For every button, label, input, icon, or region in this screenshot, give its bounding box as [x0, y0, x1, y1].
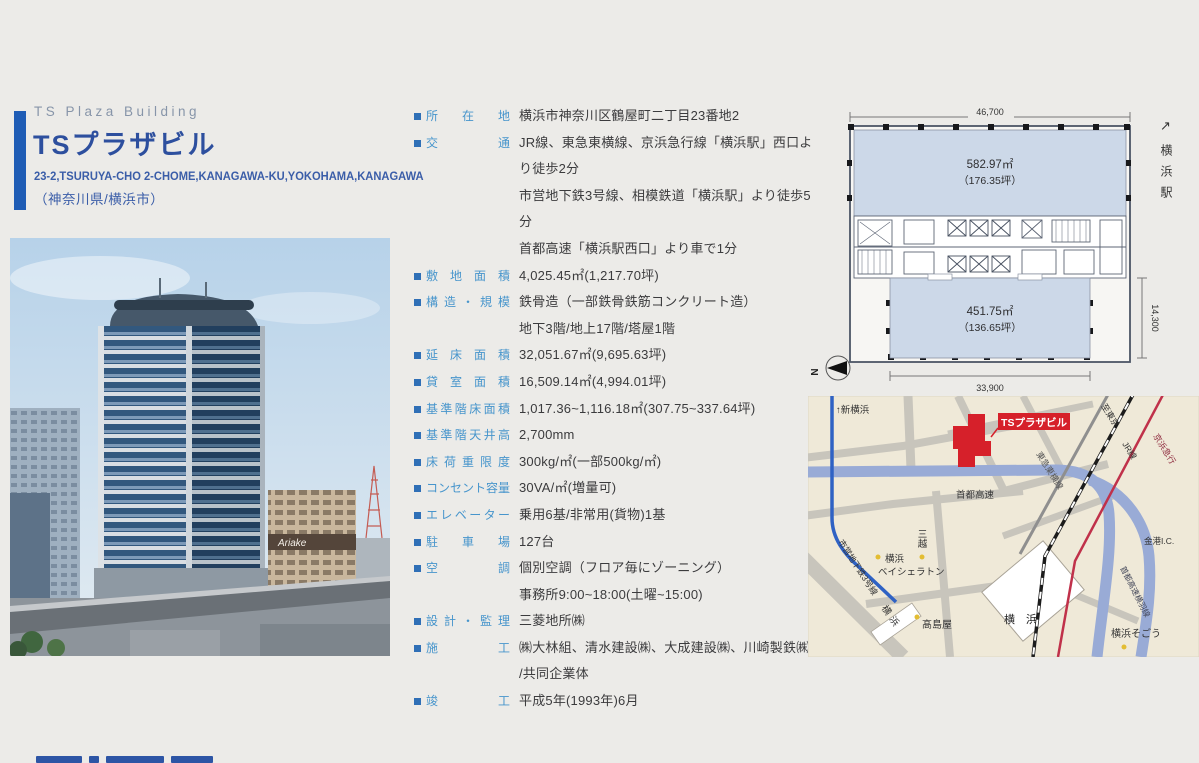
spec-row-elevators: エレベーター 乗用6基/非常用(貨物)1基	[414, 502, 814, 529]
clipped-section-title-fragment	[36, 756, 213, 763]
bullet-square-icon	[414, 512, 421, 519]
photo-cloud	[240, 292, 380, 324]
spec-row-ceiling-height: 基準階天井高 2,700mm	[414, 422, 814, 449]
building-title-ja: TSプラザビル	[33, 123, 217, 162]
spec-row-rentable-area: 貸室面積 16,509.14㎡(4,994.01坪)	[414, 369, 814, 396]
spec-value: 16,509.14㎡(4,994.01坪)	[519, 369, 666, 396]
area-map: 首都高速 首都高速横羽線 金港I.C. 市営地下鉄3号線 横浜 横 浜 東急東横…	[808, 396, 1199, 657]
building-address-en: 23-2,TSURUYA-CHO 2-CHOME,KANAGAWA-KU,YOK…	[34, 169, 424, 183]
spec-label: エレベーター	[426, 502, 510, 529]
spec-label: 延床面積	[426, 342, 510, 369]
bullet-square-icon	[414, 645, 421, 652]
compass-north-label: N	[810, 368, 821, 375]
spec-label: 竣工	[426, 688, 510, 715]
bullet-square-icon	[414, 379, 421, 386]
map-poi-dot	[915, 615, 920, 620]
bullet-square-icon	[414, 113, 421, 120]
photo-main-tower	[94, 278, 268, 602]
spec-label: 施工	[426, 635, 510, 662]
floorplan-duct	[928, 274, 952, 280]
map-mitsukoshi-label: 三越	[916, 529, 928, 548]
photo-building-sign: Ariake	[277, 538, 307, 549]
floorplan-upper-tsubo: （176.35坪）	[958, 174, 1022, 187]
building-title-en: TS Plaza Building	[34, 104, 200, 119]
floorplan-dim-top-label: 46,700	[976, 107, 1004, 117]
bullet-square-icon	[414, 406, 421, 413]
building-photo: Ariake	[10, 238, 390, 656]
map-sogo-label: 横浜そごう	[1111, 627, 1161, 640]
direction-station-label: 横浜駅	[1159, 144, 1173, 207]
map-sheraton-label-line2: ベイシェラトン	[878, 567, 945, 578]
spec-label: 基準階天井高	[426, 422, 510, 449]
floorplan-upper-office	[854, 130, 1126, 216]
compass-icon: N	[810, 356, 850, 380]
spec-row-completion: 竣工 平成5年(1993年)6月	[414, 688, 814, 715]
bullet-square-icon	[414, 299, 421, 306]
spec-row-structure: 構造・規模 鉄骨造（一部鉄骨鉄筋コンクリート造） 地下3階/地上17階/塔屋1階	[414, 289, 814, 342]
building-spec-list: 所在地 横浜市神奈川区鶴屋町二丁目23番地2 交通 JR線、東急東横線、京浜急行…	[414, 103, 814, 715]
spec-value: 1,017.36~1,116.18㎡(307.75~337.64坪)	[519, 396, 755, 423]
floorplan-upper-area: 582.97㎡	[967, 158, 1014, 171]
spec-value: 127台	[519, 529, 555, 556]
spec-label: 床荷重限度	[426, 449, 510, 476]
spec-row-design-supervision: 設計・監理 三菱地所㈱	[414, 608, 814, 635]
spec-label: 構造・規模	[426, 289, 510, 316]
spec-row-site-area: 敷地面積 4,025.45㎡(1,217.70坪)	[414, 263, 814, 290]
floorplan-dim-bottom-label: 33,900	[976, 383, 1004, 393]
bullet-square-icon	[414, 618, 421, 625]
spec-value: 個別空調（フロア毎にゾーニング） 事務所9:00~18:00(土曜~15:00)	[519, 555, 730, 608]
spec-row-access: 交通 JR線、東急東横線、京浜急行線「横浜駅」西口より徒歩2分 市営地下鉄3号線…	[414, 130, 814, 263]
spec-label: 空調	[426, 555, 510, 582]
map-poi-dot	[920, 555, 925, 560]
floor-plan: 46,700 582.97㎡ （176.35坪）	[808, 100, 1199, 396]
bullet-square-icon	[414, 539, 421, 546]
spec-row-standard-floor-area: 基準階床面積 1,017.36~1,116.18㎡(307.75~337.64坪…	[414, 396, 814, 423]
bullet-square-icon	[414, 565, 421, 572]
floorplan-dim-bottom	[890, 371, 1090, 381]
bullet-square-icon	[414, 273, 421, 280]
spec-value: 三菱地所㈱	[519, 608, 585, 635]
map-expressway-label: 首都高速	[956, 489, 995, 501]
spec-value: 2,700mm	[519, 422, 575, 449]
bullet-square-icon	[414, 140, 421, 147]
spec-label: 基準階床面積	[426, 396, 510, 423]
spec-value: 平成5年(1993年)6月	[519, 688, 639, 715]
spec-label: 交通	[426, 130, 510, 157]
spec-row-floor-load: 床荷重限度 300kg/㎡(一部500kg/㎡)	[414, 449, 814, 476]
spec-row-hvac: 空調 個別空調（フロア毎にゾーニング） 事務所9:00~18:00(土曜~15:…	[414, 555, 814, 608]
spec-label: 設計・監理	[426, 608, 510, 635]
title-accent-bar	[14, 111, 26, 210]
spec-label: 貸室面積	[426, 369, 510, 396]
spec-value: 32,051.67㎡(9,695.63坪)	[519, 342, 666, 369]
bullet-square-icon	[414, 432, 421, 439]
spec-value: 4,025.45㎡(1,217.70坪)	[519, 263, 659, 290]
bullet-square-icon	[414, 485, 421, 492]
floorplan-dim-right	[1137, 278, 1147, 358]
spec-label: 駐車場	[426, 529, 510, 556]
spec-row-construction: 施工 ㈱大林組、清水建設㈱、大成建設㈱、川崎製鉄㈱ /共同企業体	[414, 635, 814, 688]
spec-value: 横浜市神奈川区鶴屋町二丁目23番地2	[519, 103, 739, 130]
spec-row-outlet-capacity: コンセント容量 30VA/㎡(増量可)	[414, 475, 814, 502]
spec-label: 所在地	[426, 103, 510, 130]
bullet-square-icon	[414, 352, 421, 359]
map-kinko-ic-label: 金港I.C.	[1144, 536, 1174, 546]
map-poi-dot	[1122, 645, 1127, 650]
floorplan-dim-right-label: 14,300	[1150, 304, 1160, 332]
photo-cloud	[10, 256, 190, 300]
spec-row-location: 所在地 横浜市神奈川区鶴屋町二丁目23番地2	[414, 103, 814, 130]
bullet-square-icon	[414, 698, 421, 705]
floorplan-lower-tsubo: （136.65坪）	[958, 321, 1022, 334]
floorplan-duct	[1018, 274, 1042, 280]
spec-value: ㈱大林組、清水建設㈱、大成建設㈱、川崎製鉄㈱ /共同企業体	[519, 635, 809, 688]
spec-label: コンセント容量	[426, 475, 510, 502]
spec-value: 乗用6基/非常用(貨物)1基	[519, 502, 666, 529]
spec-row-parking: 駐車場 127台	[414, 529, 814, 556]
floorplan-lower-office	[890, 278, 1090, 358]
spec-value: 30VA/㎡(増量可)	[519, 475, 616, 502]
floorplan-lower-area: 451.75㎡	[967, 305, 1014, 318]
map-poi-dot	[876, 555, 881, 560]
spec-value: JR線、東急東横線、京浜急行線「横浜駅」西口より徒歩2分 市営地下鉄3号線、相模…	[519, 130, 814, 263]
map-station-main-label: 横 浜	[1004, 612, 1037, 626]
map-sheraton-label-line1: 横浜	[885, 553, 905, 565]
floorplan-core	[854, 216, 1126, 278]
direction-arrow: ↗	[1160, 118, 1171, 133]
bullet-square-icon	[414, 459, 421, 466]
spec-row-total-floor-area: 延床面積 32,051.67㎡(9,695.63坪)	[414, 342, 814, 369]
spec-value: 300kg/㎡(一部500kg/㎡)	[519, 449, 661, 476]
spec-label: 敷地面積	[426, 263, 510, 290]
map-takashimaya-label: 髙島屋	[922, 618, 952, 631]
map-shin-yokohama-label: ↑新横浜	[836, 404, 870, 416]
spec-value: 鉄骨造（一部鉄骨鉄筋コンクリート造） 地下3階/地上17階/塔屋1階	[519, 289, 757, 342]
building-region-ja: （神奈川県/横浜市）	[34, 188, 164, 208]
map-building-label: TSプラザビル	[1001, 416, 1067, 429]
